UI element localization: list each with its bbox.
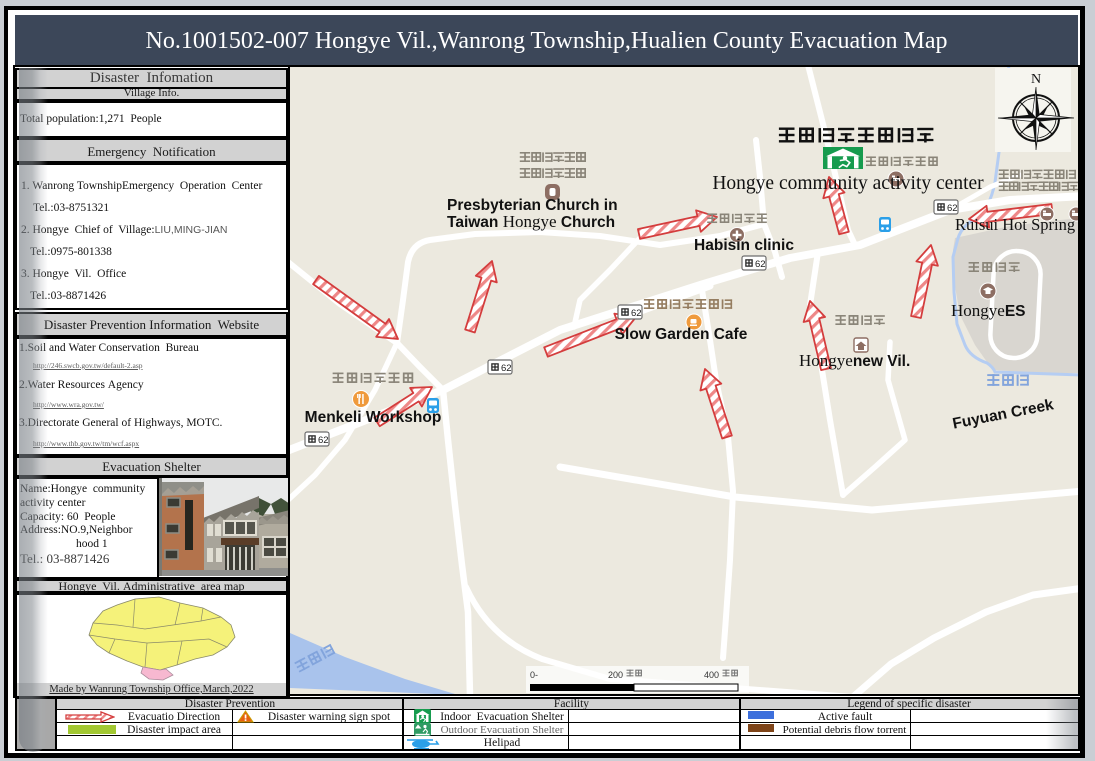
svg-text:62: 62 <box>631 308 642 319</box>
svg-text:Menkeli Workshop: Menkeli Workshop <box>305 409 442 426</box>
svg-text:Ruisui Hot Spring: Ruisui Hot Spring <box>955 215 1075 234</box>
svg-text:Slow Garden Cafe: Slow Garden Cafe <box>615 326 748 343</box>
svg-text:62: 62 <box>318 435 329 446</box>
svg-text:Habisin clinic: Habisin clinic <box>694 237 794 254</box>
svg-text:HongyeES: HongyeES <box>951 301 1026 320</box>
svg-text:0-: 0- <box>530 670 538 680</box>
svg-text:62: 62 <box>755 259 766 270</box>
svg-text:200: 200 <box>608 670 623 680</box>
svg-text:N: N <box>1031 72 1041 87</box>
svg-text:Hongyenew Vil.: Hongyenew Vil. <box>799 351 910 370</box>
svg-text:Hongye community activity cent: Hongye community activity center <box>712 173 984 194</box>
svg-text:62: 62 <box>947 203 958 214</box>
svg-text:Taiwan Hongye Church: Taiwan Hongye Church <box>447 212 615 231</box>
svg-text:400: 400 <box>704 670 719 680</box>
svg-text:62: 62 <box>501 363 512 374</box>
